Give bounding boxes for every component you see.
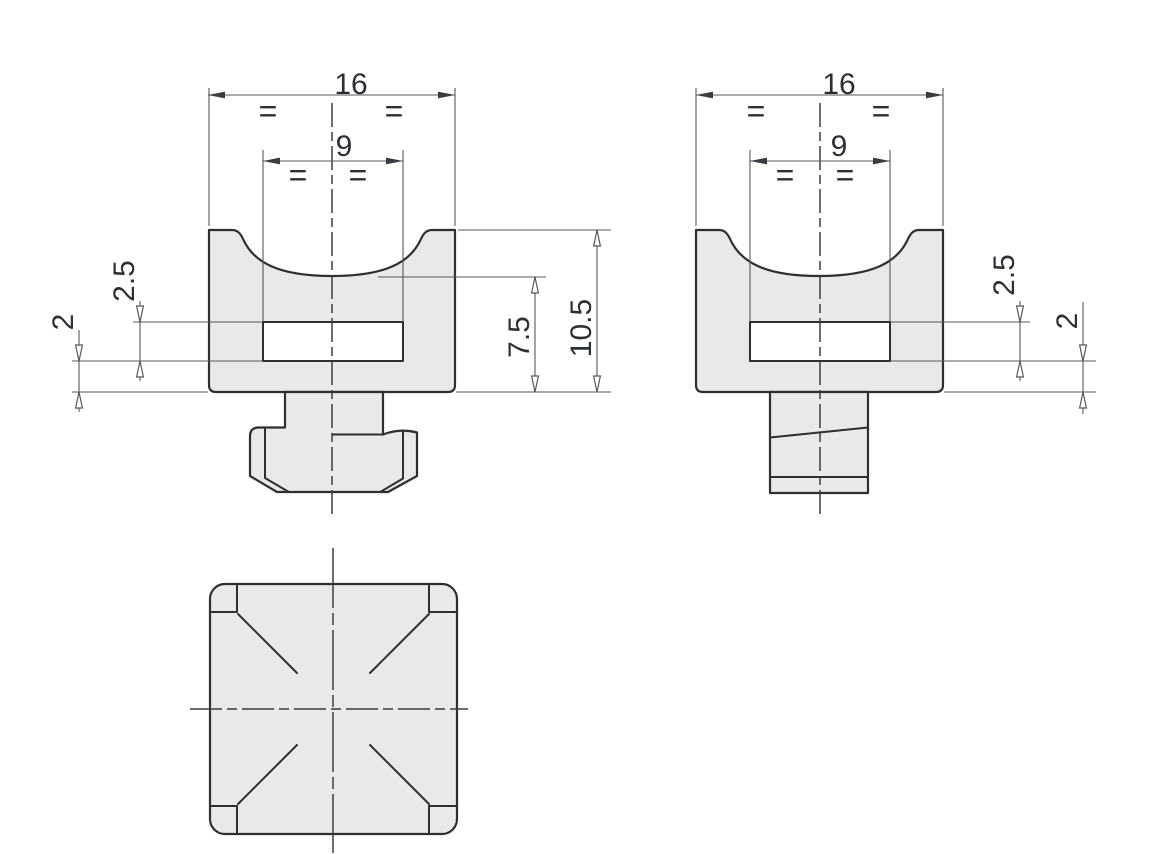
equal-mark: =: [289, 157, 308, 193]
dim-text-width: 16: [822, 68, 855, 101]
equal-mark: =: [385, 93, 404, 129]
dim-text-cavity: 7.5: [503, 316, 536, 358]
dim-arrow-down: [1080, 345, 1087, 361]
dim-text-slot-height: 2.5: [988, 254, 1021, 296]
equal-mark: =: [776, 157, 795, 193]
dim-arrow-right: [873, 158, 890, 165]
dim-arrow-left: [208, 92, 225, 99]
drawing-sheet: 16 = = 9 = = 2.5 2: [0, 0, 1165, 854]
dim-arrow-down: [1017, 306, 1024, 322]
dim-text-width: 16: [334, 68, 367, 101]
front-slot: [263, 322, 403, 361]
dim-arrow-up: [594, 230, 601, 246]
dim-arrow-right: [438, 92, 455, 99]
dim-arrow-down: [532, 376, 539, 392]
equal-mark: =: [259, 93, 278, 129]
dim-arrow-down: [76, 345, 83, 361]
dim-arrow-left: [696, 92, 713, 99]
equal-mark: =: [349, 157, 368, 193]
front-foot: [250, 392, 417, 492]
dim-arrow-up: [1080, 392, 1087, 408]
drawing-canvas: 16 = = 9 = = 2.5 2: [0, 0, 1165, 854]
dim-text-base: 2: [1051, 313, 1084, 330]
dim-text-height: 10.5: [565, 299, 598, 357]
equal-mark: =: [747, 93, 766, 129]
dim-arrow-left: [750, 158, 767, 165]
dim-arrow-up: [1017, 361, 1024, 377]
side-view: 16 = = 9 = = 2.5 2: [696, 68, 1096, 514]
dim-arrow-up: [137, 361, 144, 377]
dim-arrow-up: [76, 392, 83, 408]
bottom-view: [190, 548, 468, 853]
dim-arrow-right: [386, 158, 403, 165]
front-dim-base: 2: [47, 314, 208, 412]
dim-arrow-left: [263, 158, 280, 165]
dim-text-base: 2: [47, 314, 80, 331]
front-view: 16 = = 9 = = 2.5 2: [47, 68, 611, 514]
dim-text-slot-height: 2.5: [108, 260, 141, 302]
dim-arrow-down: [594, 376, 601, 392]
dim-arrow-right: [926, 92, 943, 99]
dim-arrow-down: [137, 306, 144, 322]
equal-mark: =: [836, 157, 855, 193]
dim-arrow-up: [532, 277, 539, 293]
front-dim-height: 10.5: [456, 230, 611, 392]
equal-mark: =: [872, 93, 891, 129]
